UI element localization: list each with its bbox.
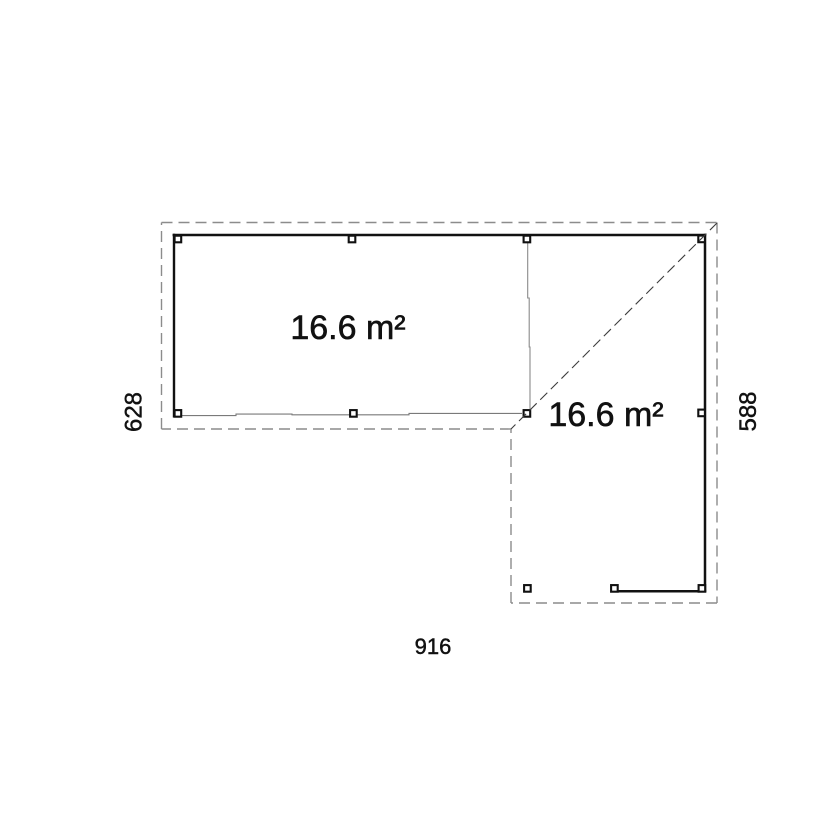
svg-text:588: 588 xyxy=(735,391,762,431)
svg-text:16.6 m²: 16.6 m² xyxy=(290,309,405,347)
svg-text:16.6 m²: 16.6 m² xyxy=(548,396,663,434)
svg-text:916: 916 xyxy=(415,634,452,659)
svg-text:628: 628 xyxy=(121,392,148,432)
